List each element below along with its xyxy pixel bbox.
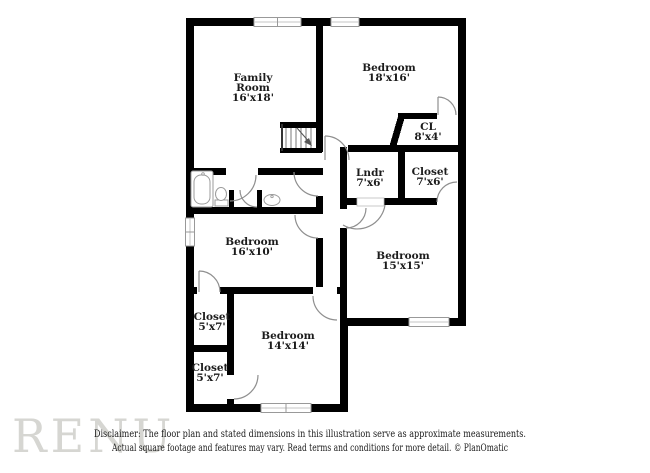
window-left-bedroom16 xyxy=(186,218,195,246)
wall-family-bedroom-divider xyxy=(316,18,323,152)
wall-stair-top xyxy=(280,122,322,128)
wall-closets-mid xyxy=(186,345,234,352)
wall-hall-right-lower xyxy=(340,228,347,326)
cl-dims: 8'x4' xyxy=(414,131,441,143)
wall-right xyxy=(458,18,466,326)
room-label-closet-bottom-upper: Closet 5'x7' xyxy=(194,311,231,333)
laundry-dims: 7'x6' xyxy=(356,177,383,189)
bathtub-icon xyxy=(191,171,213,207)
wall-laundry-row-bottom-2 xyxy=(384,198,437,205)
room-label-bedroom-top-right: Bedroom 18'x16' xyxy=(362,62,416,84)
window-top-family xyxy=(254,18,301,27)
wall-stair-bottom xyxy=(280,148,322,153)
wall-laundry-row-bottom-1 xyxy=(340,198,357,205)
wall-laundry-closet-divider xyxy=(398,152,405,198)
room-label-bedroom-mid-right: Bedroom 15'x15' xyxy=(376,250,430,272)
door-arc-bedroom14 xyxy=(313,296,337,320)
room-label-closet-bottom-lower: Closet 5'x7' xyxy=(192,362,229,384)
wall-closet2-right-lower xyxy=(227,399,234,404)
window-bedroom15 xyxy=(409,318,449,327)
wall-right-bottom-section xyxy=(340,318,348,412)
disclaimer-line-2: Actual square footage and features may v… xyxy=(111,442,508,454)
wall-bed16-bottom-2 xyxy=(220,287,313,294)
bedroom18-dims: 18'x16' xyxy=(368,72,410,84)
room-label-bedroom-mid-left: Bedroom 16'x10' xyxy=(225,236,279,258)
disclaimer-line-1: Disclaimer: The floor plan and stated di… xyxy=(94,428,526,440)
door-arc-bedroom16 xyxy=(295,215,318,238)
door-arc-bedroom15 xyxy=(346,208,366,228)
room-label-family-room: Family Room 16'x18' xyxy=(232,72,274,104)
wall-toilet-stub-right xyxy=(257,190,262,207)
floor-plan-page: RENU xyxy=(0,0,650,473)
bedroom16-dims: 16'x10' xyxy=(231,246,273,258)
wall-hall-left-upper xyxy=(316,196,323,207)
room-label-cl: CL 8'x4' xyxy=(414,121,441,143)
interior-walls xyxy=(186,18,466,404)
door-opening-laundry xyxy=(357,198,384,206)
family-room-dims: 16'x18' xyxy=(232,92,274,104)
wall-bathroom-bottom xyxy=(186,207,323,214)
closet-b2-dims: 5'x7' xyxy=(196,372,223,384)
stair-side xyxy=(281,124,283,151)
closet-tr-dims: 7'x6' xyxy=(416,176,443,188)
wall-hall-left-lower xyxy=(316,238,323,287)
wall-laundry-row-top xyxy=(348,145,466,152)
room-label-closet-top-right: Closet 7'x6' xyxy=(412,166,449,188)
door-arc-bathroom xyxy=(294,172,318,196)
window-bottom-bedroom14 xyxy=(261,404,311,413)
sink-icon xyxy=(264,195,280,206)
wall-left xyxy=(186,18,194,412)
bedroom14-dims: 14'x14' xyxy=(267,340,309,352)
wall-top xyxy=(186,18,466,26)
window-top-bedroom xyxy=(331,18,359,27)
bedroom15-dims: 15'x15' xyxy=(382,260,424,272)
floor-plan-drawing: RENU xyxy=(0,0,650,473)
wall-toilet-stub-left xyxy=(229,190,234,207)
room-label-bedroom-bottom: Bedroom 14'x14' xyxy=(261,330,315,352)
room-label-laundry: Lndr 7'x6' xyxy=(356,167,384,189)
door-arc-bedroom18 xyxy=(438,97,456,115)
wall-family-bottom-right xyxy=(258,168,323,175)
wall-bed16-bottom-1 xyxy=(186,287,197,294)
closet-b1-dims: 5'x7' xyxy=(198,321,225,333)
bathroom-fixtures xyxy=(191,171,280,207)
door-arc-closet-upper xyxy=(199,271,220,292)
staircase xyxy=(281,124,312,151)
toilet-icon xyxy=(215,188,228,207)
door-arc-closet-lower xyxy=(234,375,258,399)
